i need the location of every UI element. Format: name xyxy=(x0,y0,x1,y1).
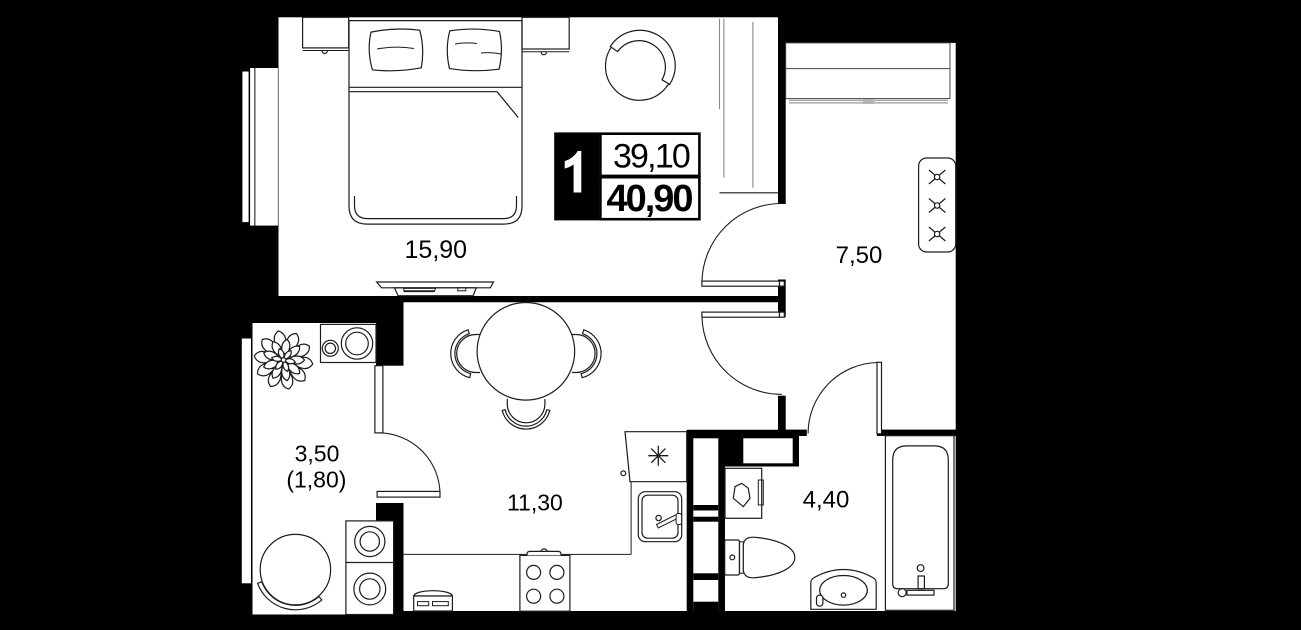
svg-text:40,90: 40,90 xyxy=(606,178,692,220)
svg-text:3,50: 3,50 xyxy=(295,441,340,467)
svg-text:39,10: 39,10 xyxy=(613,138,690,176)
svg-text:7,50: 7,50 xyxy=(836,242,883,269)
svg-text:15,90: 15,90 xyxy=(405,236,468,264)
svg-text:11,30: 11,30 xyxy=(507,490,563,516)
svg-text:(1,80): (1,80) xyxy=(286,467,346,493)
svg-text:4,40: 4,40 xyxy=(803,487,850,514)
